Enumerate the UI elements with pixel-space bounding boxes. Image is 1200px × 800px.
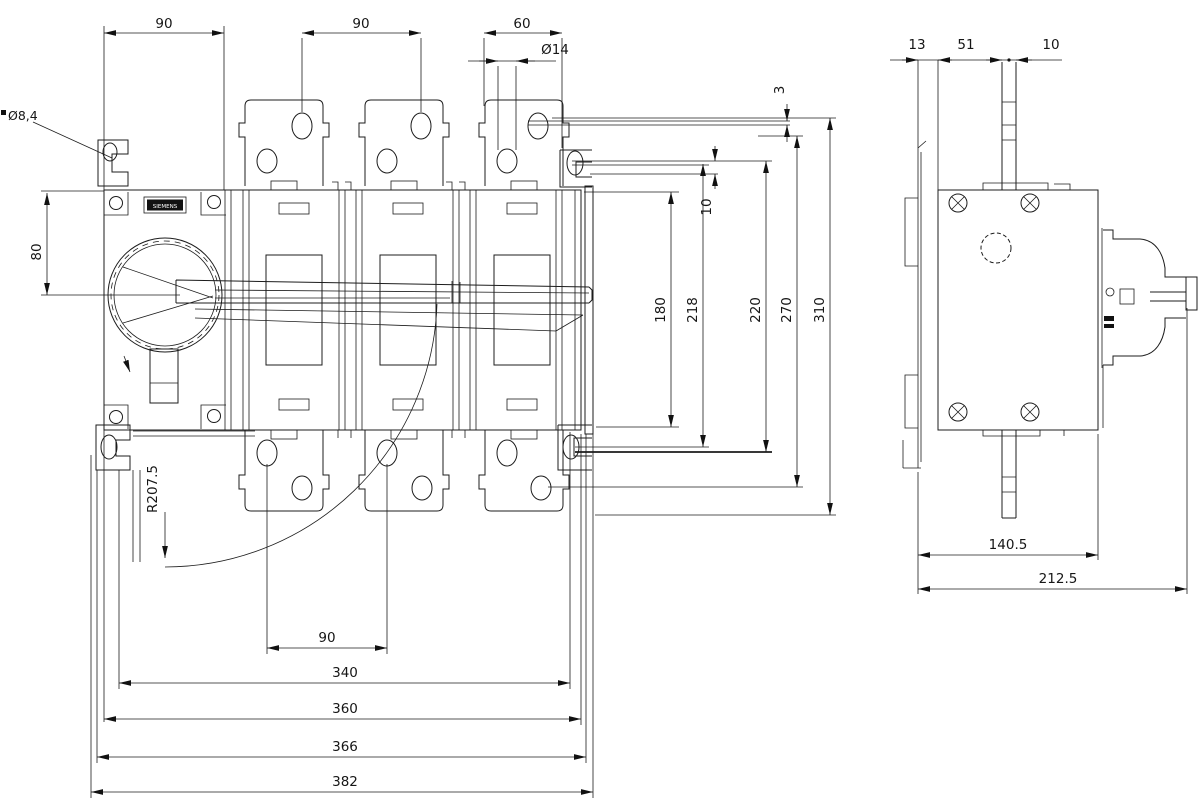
side-dimensions: 13 51 10 140.5 212.5 [890, 37, 1187, 594]
dim-radius-207-5: R207.5 [145, 465, 161, 513]
dim-side-51: 51 [957, 37, 974, 53]
side-mounting-bracket [903, 141, 926, 468]
dim-right-220: 220 [748, 297, 764, 323]
dim-right-310: 310 [812, 297, 828, 323]
dim-top-60: 60 [513, 16, 530, 32]
dim-bottom-366: 366 [332, 739, 358, 755]
dim-bottom-90: 90 [318, 630, 335, 646]
side-busbars [1002, 62, 1016, 518]
trip-arrow-icon [124, 356, 130, 372]
dim-side-10: 10 [1042, 37, 1059, 53]
dim-dia-14: Ø14 [541, 42, 569, 58]
dim-top-90-left: 90 [155, 16, 172, 32]
dim-bottom-382: 382 [332, 774, 358, 790]
handle-lever-phantom [195, 309, 583, 331]
brand-plate: SIEMENS [144, 197, 186, 213]
dim-right-218: 218 [685, 297, 701, 323]
front-dimensions: 90 90 60 Ø14 Ø8,4 80 180 218 220 270 [1, 16, 830, 798]
front-body-outline [104, 182, 593, 438]
front-view: SIEMENS [1, 16, 836, 798]
dim-offset-10: 10 [699, 198, 715, 215]
switch-disconnector-drawing: SIEMENS [0, 0, 1200, 800]
dim-side-13: 13 [908, 37, 925, 53]
side-body [938, 183, 1098, 436]
pole-windows [266, 203, 550, 410]
dim-side-140-5: 140.5 [989, 537, 1028, 553]
dim-right-180: 180 [653, 297, 669, 323]
side-view: 13 51 10 140.5 212.5 [890, 37, 1197, 594]
dim-bottom-360: 360 [332, 701, 358, 717]
spline-shaft-hole [981, 233, 1011, 263]
handle-lever [176, 280, 592, 331]
rotary-handle [108, 238, 222, 403]
dim-busbar-3: 3 [772, 86, 788, 95]
dim-top-90-mid: 90 [352, 16, 369, 32]
dim-side-212-5: 212.5 [1039, 571, 1078, 587]
top-terminal-tabs [239, 100, 569, 190]
brand-label: SIEMENS [153, 204, 178, 210]
dim-right-270: 270 [779, 297, 795, 323]
handle-position-i-mark [1104, 316, 1114, 321]
dim-left-80: 80 [29, 243, 45, 260]
side-handle-shaft [1102, 228, 1197, 428]
technical-drawing-page: SIEMENS [0, 0, 1200, 800]
dim-dia-8-4: Ø8,4 [8, 108, 38, 123]
bottom-terminal-tabs [239, 430, 569, 511]
handle-stem [150, 349, 178, 403]
dim-bottom-340: 340 [332, 665, 358, 681]
handle-position-o-mark [1106, 288, 1114, 296]
